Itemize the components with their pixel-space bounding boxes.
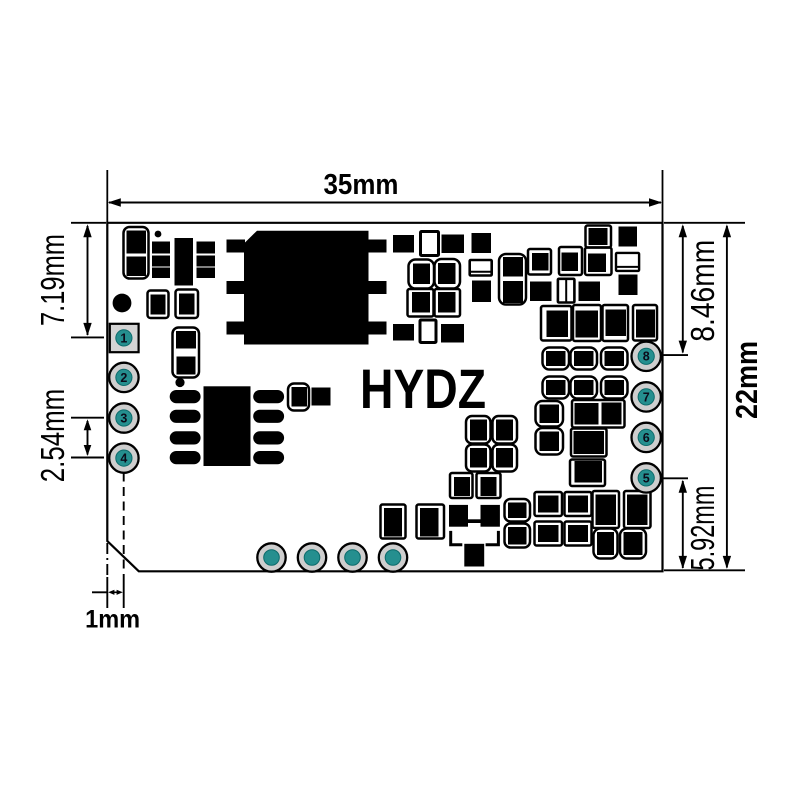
svg-text:2: 2	[120, 371, 127, 385]
svg-text:5.92mm: 5.92mm	[684, 486, 721, 571]
svg-text:HYDZ: HYDZ	[360, 357, 486, 420]
svg-text:6: 6	[643, 431, 650, 445]
svg-text:8: 8	[643, 350, 650, 364]
svg-text:2.54mm: 2.54mm	[34, 389, 71, 483]
svg-text:5: 5	[643, 471, 650, 485]
svg-text:35mm: 35mm	[324, 169, 399, 201]
svg-text:1mm: 1mm	[85, 605, 140, 633]
svg-text:4: 4	[120, 452, 127, 466]
svg-text:7: 7	[643, 390, 650, 404]
svg-text:1: 1	[120, 331, 127, 345]
svg-text:8.46mm: 8.46mm	[684, 240, 721, 342]
svg-text:22mm: 22mm	[729, 341, 764, 419]
svg-text:7.19mm: 7.19mm	[34, 234, 71, 326]
svg-text:3: 3	[120, 411, 127, 425]
